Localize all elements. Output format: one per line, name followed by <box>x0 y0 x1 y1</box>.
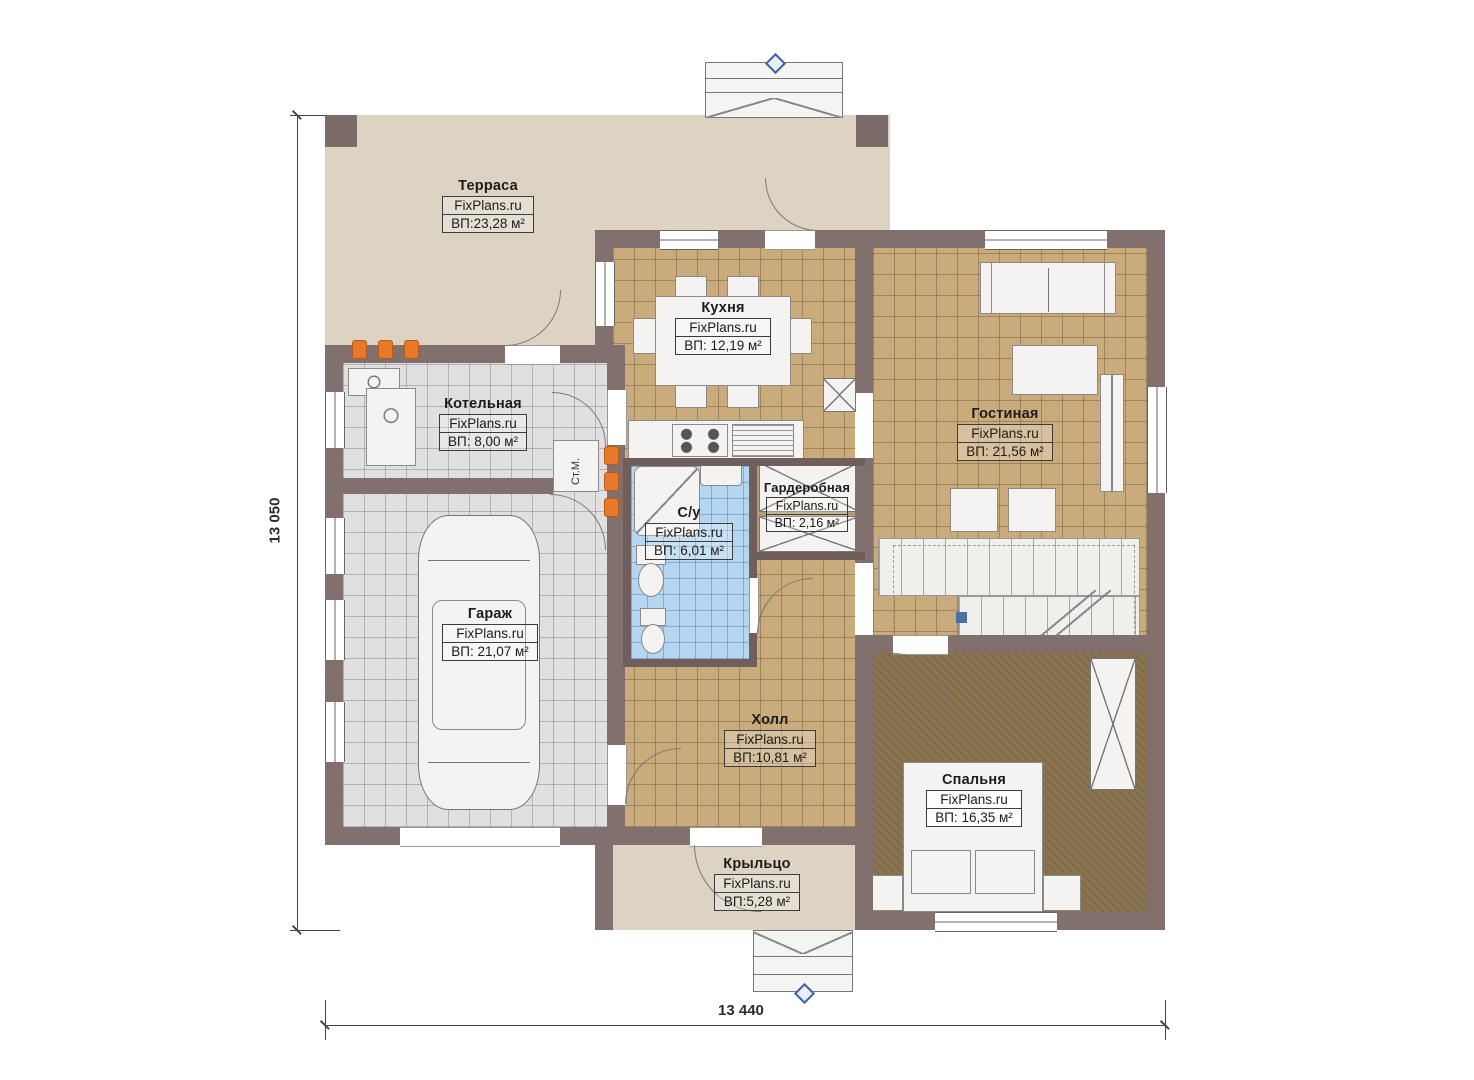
brand-text: FixPlans.ru <box>927 791 1021 809</box>
room-info-box: FixPlans.ru ВП: 8,00 м² <box>439 414 527 451</box>
pillow <box>911 850 971 894</box>
room-label-terrace: Терраса FixPlans.ru ВП:23,28 м² <box>408 178 568 233</box>
room-label-porch: Крыльцо FixPlans.ru ВП:5,28 м² <box>692 856 822 911</box>
kitchen-sink <box>732 424 794 457</box>
room-name: Котельная <box>408 396 558 412</box>
terrace-column <box>325 115 357 147</box>
stove <box>672 424 728 457</box>
dimension-value-left: 13 050 <box>266 498 283 544</box>
dimension-ext <box>1165 1000 1166 1040</box>
armchair <box>1008 488 1056 532</box>
room-info-box: FixPlans.ru ВП: 21,56 м² <box>957 424 1053 461</box>
window-living-right <box>1147 387 1167 493</box>
terrace-step-arrow <box>705 98 774 118</box>
radiator-icon <box>378 340 393 359</box>
tv-unit <box>1100 374 1124 492</box>
room-info-box: FixPlans.ru ВП:10,81 м² <box>724 730 816 767</box>
brand-text: FixPlans.ru <box>715 875 799 893</box>
brand-text: FixPlans.ru <box>676 319 770 337</box>
brand-text: FixPlans.ru <box>767 498 848 515</box>
window-kitchen-terrace <box>595 262 615 326</box>
bedroom-door-opening <box>893 635 948 655</box>
room-info-box: FixPlans.ru ВП: 12,19 м² <box>675 318 771 355</box>
room-info-box: FixPlans.ru ВП:23,28 м² <box>442 196 534 233</box>
room-name: Спальня <box>910 772 1038 788</box>
room-area: ВП: 16,35 м² <box>927 809 1021 826</box>
room-info-box: FixPlans.ru ВП:5,28 м² <box>714 874 800 911</box>
dimension-ext <box>325 1000 326 1040</box>
garage-hall-door-opening <box>607 745 627 805</box>
window-boiler <box>325 392 345 448</box>
entrance-door-opening <box>690 827 762 847</box>
brand-text: FixPlans.ru <box>443 197 533 215</box>
washing-machine: Ст.М. <box>553 440 599 492</box>
room-label-bedroom: Спальня FixPlans.ru ВП: 16,35 м² <box>910 772 1038 827</box>
wall-porch-left <box>595 845 613 930</box>
room-label-hall: Холл FixPlans.ru ВП:10,81 м² <box>695 712 845 767</box>
brand-text: FixPlans.ru <box>646 524 732 542</box>
sofa-arm <box>980 262 992 314</box>
stairs-marker <box>956 612 967 623</box>
terrace-step-line <box>705 78 843 79</box>
wall-boiler-garage <box>343 478 553 494</box>
window-kitchen <box>660 230 718 250</box>
room-name: Гостиная <box>930 406 1080 422</box>
radiator-icon <box>404 340 419 359</box>
wall-bedroom-left <box>855 635 873 930</box>
wall-right <box>1147 230 1165 930</box>
room-name: Крыльцо <box>692 856 822 872</box>
sofa-cushion-line <box>1048 268 1049 312</box>
wall-bath-top <box>623 458 865 466</box>
room-info-box: FixPlans.ru ВП: 16,35 м² <box>926 790 1022 827</box>
room-info-box: FixPlans.ru ВП: 6,01 м² <box>645 523 733 560</box>
column-marker <box>823 378 856 412</box>
nightstand <box>1043 875 1081 911</box>
radiator-icon <box>604 498 619 517</box>
room-info-box: FixPlans.ru ВП: 2,16 м² <box>766 497 849 532</box>
wall-kitchen-living <box>855 248 873 393</box>
kitchen-terrace-door-opening <box>765 230 815 250</box>
brand-text: FixPlans.ru <box>725 731 815 749</box>
dimension-line-left <box>297 115 298 930</box>
radiator-icon <box>604 472 619 491</box>
car-rear-window <box>428 762 530 763</box>
terrace-column <box>856 115 888 147</box>
boiler-hall-door-opening <box>607 390 627 445</box>
coffee-table <box>1012 345 1098 395</box>
dimension-value-bottom: 13 440 <box>718 1002 764 1019</box>
room-label-garage: Гараж FixPlans.ru ВП: 21,07 м² <box>416 606 564 661</box>
brand-text: FixPlans.ru <box>440 415 526 433</box>
window-garage <box>325 518 345 574</box>
room-label-living: Гостиная FixPlans.ru ВП: 21,56 м² <box>930 406 1080 461</box>
brand-text: FixPlans.ru <box>443 625 537 643</box>
radiator-icon <box>352 340 367 359</box>
boiler-terrace-door-opening <box>505 345 560 365</box>
room-name: Кухня <box>650 300 796 316</box>
room-area: ВП: 8,00 м² <box>440 433 526 450</box>
room-area: ВП:5,28 м² <box>715 893 799 910</box>
washing-machine-label: Ст.М. <box>570 441 582 485</box>
porch-step-line <box>753 974 853 975</box>
dimension-line-bottom <box>325 1025 1165 1026</box>
window-garage <box>325 702 345 762</box>
toilet-bowl <box>638 563 664 597</box>
bidet-bowl <box>641 624 665 654</box>
room-area: ВП: 2,16 м² <box>767 515 848 531</box>
garage-door-opening <box>400 827 560 847</box>
room-area: ВП: 12,19 м² <box>676 337 770 354</box>
car-windshield <box>428 560 530 561</box>
room-name: Холл <box>695 712 845 728</box>
porch-step-line <box>753 956 853 957</box>
room-label-kitchen: Кухня FixPlans.ru ВП: 12,19 м² <box>650 300 796 355</box>
brand-text: FixPlans.ru <box>958 425 1052 443</box>
floor-plan: Ст.М. <box>0 0 1474 1080</box>
room-name: С/у <box>628 505 750 521</box>
radiator-icon <box>604 446 619 465</box>
armchair <box>950 488 998 532</box>
room-area: ВП:10,81 м² <box>725 749 815 766</box>
window-bedroom <box>935 912 1057 932</box>
room-name: Гардеробная <box>745 480 869 495</box>
terrace-step-line <box>705 92 843 93</box>
sofa-arm <box>1104 262 1116 314</box>
window-living <box>985 230 1107 250</box>
room-label-bathroom: С/у FixPlans.ru ВП: 6,01 м² <box>628 505 750 560</box>
wall-bath-bottom <box>623 659 757 667</box>
stairs-walk-line <box>893 545 1135 639</box>
room-label-wardrobe: Гардеробная FixPlans.ru ВП: 2,16 м² <box>745 480 869 532</box>
room-area: ВП: 21,07 м² <box>443 643 537 660</box>
room-name: Гараж <box>416 606 564 622</box>
pillow <box>975 850 1035 894</box>
room-area: ВП: 6,01 м² <box>646 542 732 559</box>
wall-wardrobe-bottom <box>757 552 865 560</box>
room-name: Терраса <box>408 178 568 194</box>
room-label-boiler: Котельная FixPlans.ru ВП: 8,00 м² <box>408 396 558 451</box>
bedroom-wardrobe <box>1090 658 1136 790</box>
porch-step-arrow <box>803 932 853 954</box>
porch-step-arrow <box>753 932 803 954</box>
terrace-step-arrow <box>774 98 843 118</box>
room-info-box: FixPlans.ru ВП: 21,07 м² <box>442 624 538 661</box>
wall-wing-top <box>325 345 625 363</box>
room-area: ВП:23,28 м² <box>443 215 533 232</box>
room-area: ВП: 21,56 м² <box>958 443 1052 460</box>
wall-bath-left <box>623 458 631 667</box>
window-garage <box>325 600 345 660</box>
